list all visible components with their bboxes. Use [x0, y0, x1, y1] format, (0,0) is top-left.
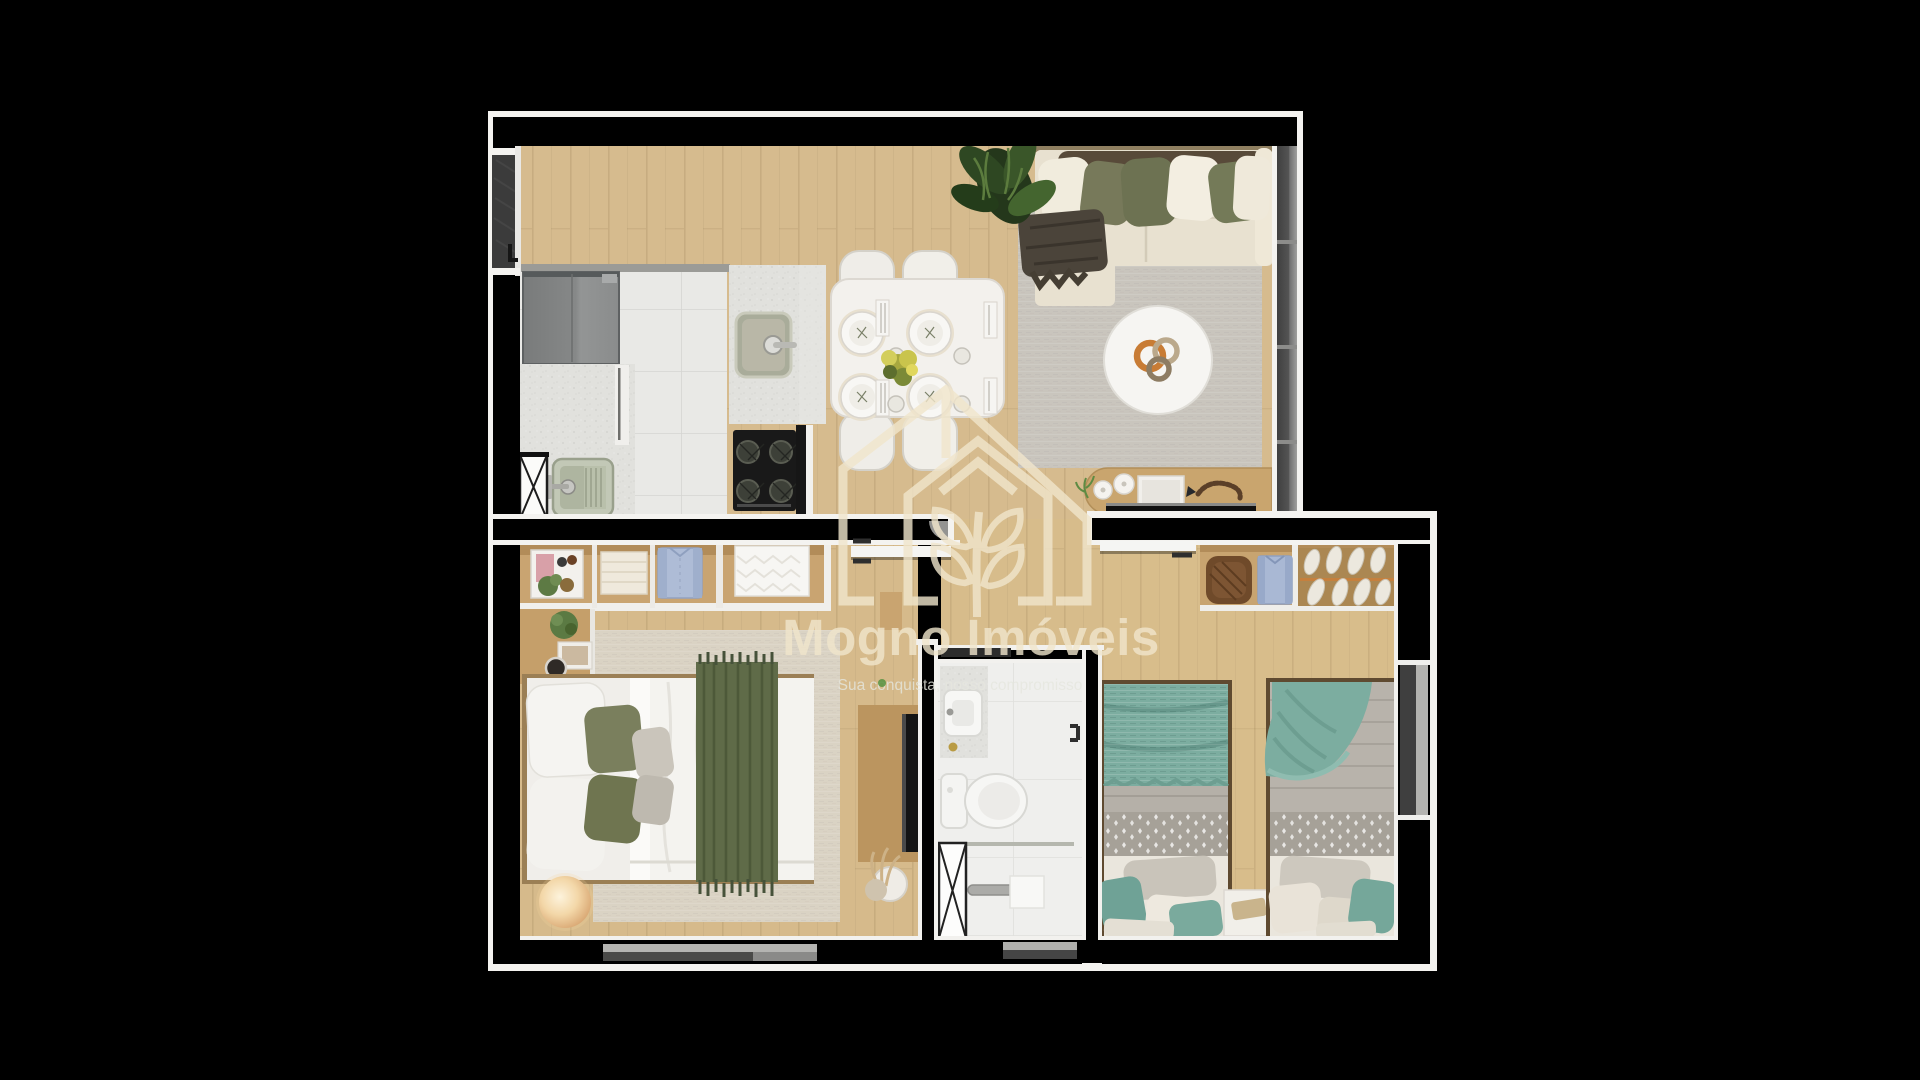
svg-text:Mogno Imóveis: Mogno Imóveis [782, 609, 1160, 666]
svg-text:Sua conquista, nosso compromis: Sua conquista, nosso compromisso [838, 677, 1083, 694]
